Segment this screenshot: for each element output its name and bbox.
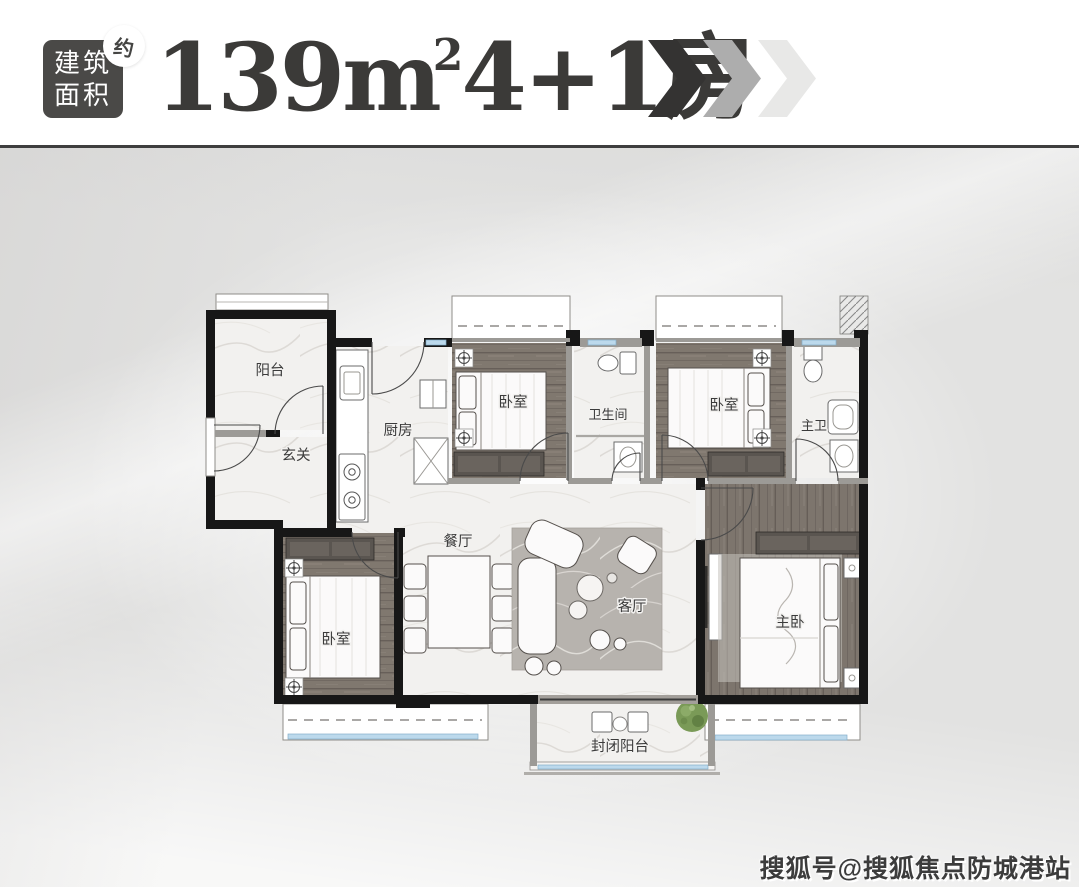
wardrobe-icon [454,452,544,476]
area-badge-line2: 面积 [54,79,112,111]
ceiling-fixture-icon [455,349,473,367]
page-title: 139m24+1房 [155,2,753,138]
bathtub-icon [828,400,858,434]
ceiling-fixture-icon [285,559,303,577]
ceiling-fixture-icon [753,429,771,447]
watermark-text: 搜狐号@搜狐焦点防城港站 [760,849,1071,885]
ceiling-fixture-icon [455,429,473,447]
room-label: 封闭阳台 [591,738,649,755]
room-label: 玄关 [282,447,311,464]
wardrobe-icon [756,532,860,554]
plant-icon [676,700,708,732]
room-label: 卧室 [710,397,739,414]
room-label: 餐厅 [444,533,473,550]
room-label: 主卧 [776,614,805,631]
chevron-icon [758,40,816,117]
kitchen-counter-icon [336,350,368,522]
sink-icon [830,440,858,472]
shaft-icon [414,438,448,484]
approx-badge: 约 [103,25,145,67]
ceiling-fixture-icon [285,678,303,696]
room-label: 阳台 [256,362,285,379]
title-superscript: 2 [433,30,464,81]
content-area: 阳台 玄关 厨房 卧室 卫生间 卧室 主卫 餐厅 客厅 卧室 主卧 封闭阳台 搜… [0,148,1079,887]
tv-icon [705,566,708,628]
room-label: 卧室 [499,394,528,411]
room-label: 厨房 [384,422,413,439]
header-section: 建筑 面积 约 139m24+1房 [0,0,1079,145]
shaft-hatch [840,296,868,334]
floor-plan: 阳台 玄关 厨房 卧室 卫生间 卧室 主卫 餐厅 客厅 卧室 主卧 封闭阳台 [200,288,880,793]
fridge-icon [420,380,446,408]
title-number: 139m [155,23,439,133]
wardrobe-icon [286,538,374,560]
bed-icon [286,576,380,678]
page-background: 建筑 面积 约 139m24+1房 [0,0,1079,887]
wardrobe-icon [708,452,784,476]
ceiling-fixture-icon [753,349,771,367]
room-label: 主卫 [801,418,827,433]
room-label: 卫生间 [588,407,627,422]
toilet-icon [804,346,822,382]
dining-table-icon [404,556,514,653]
room-label: 客厅 [618,598,647,615]
sink-icon [614,442,642,472]
room-label: 卧室 [322,631,351,648]
approx-badge-label: 约 [112,30,137,62]
